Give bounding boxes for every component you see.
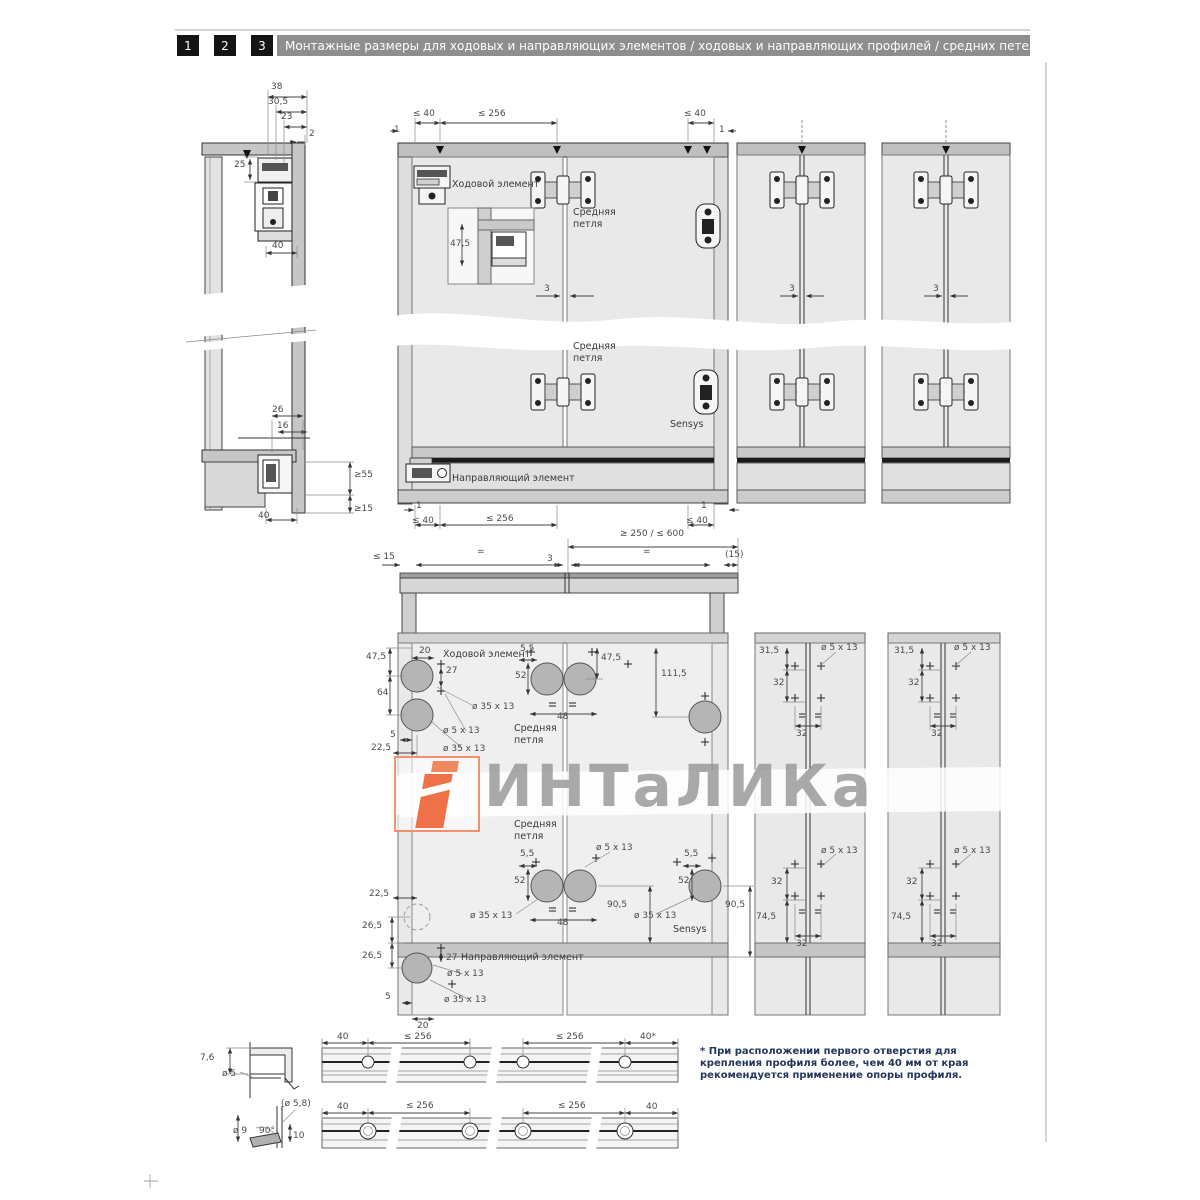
dim-47-5-center: 47,5 bbox=[601, 653, 621, 663]
dim-90-5-a: 90,5 bbox=[607, 900, 627, 910]
section-title: Монтажные размеры для ходовых и направля… bbox=[277, 35, 1030, 56]
dim-27-b: 27 bbox=[446, 953, 457, 963]
dim-ge55: ≥55 bbox=[354, 470, 373, 480]
dim-le40-top-left: ≤ 40 bbox=[413, 109, 435, 119]
step-2-badge: 2 bbox=[214, 35, 236, 56]
dim-equal-right: = bbox=[643, 547, 651, 557]
technical-drawing-canvas bbox=[0, 0, 1200, 1200]
dim-ge15: ≥15 bbox=[354, 504, 373, 514]
dim-26-5-b: 26,5 bbox=[362, 951, 382, 961]
dim-31-5-col2: 31,5 bbox=[894, 646, 914, 656]
dim-32-col1-d: 32 bbox=[796, 939, 807, 949]
step-1-badge: 1 bbox=[177, 35, 199, 56]
dim-5-b: 5 bbox=[385, 992, 391, 1002]
dim-111-5: 111,5 bbox=[661, 669, 687, 679]
dim-40-rail2-b: 40 bbox=[646, 1102, 657, 1112]
dim-7-6: 7,6 bbox=[200, 1053, 214, 1063]
dim-5-5-b: 5,5 bbox=[520, 849, 534, 859]
dim-40-star: 40* bbox=[640, 1032, 656, 1042]
dim-40-rail1: 40 bbox=[337, 1032, 348, 1042]
dim-dia5-8: (ø 5,8) bbox=[281, 1099, 311, 1109]
callout-hole5-a: ø 5 x 13 bbox=[443, 726, 480, 736]
dim-32-col1-b: 32 bbox=[796, 729, 807, 739]
dim-74-5-col2: 74,5 bbox=[891, 912, 911, 922]
dim-38: 38 bbox=[271, 82, 282, 92]
dim-26: 26 bbox=[272, 405, 283, 415]
callout-hole5-b: ø 5 x 13 bbox=[596, 843, 633, 853]
dim-1-bottom-right: 1 bbox=[701, 501, 707, 511]
callout-hole5-col1-top: ø 5 x 13 bbox=[821, 643, 858, 653]
dim-le256-rail2-a: ≤ 256 bbox=[406, 1101, 434, 1111]
dim-dia9: ø 9 bbox=[233, 1126, 247, 1136]
dim-3-front: 3 bbox=[544, 284, 550, 294]
dim-le40-bottom-right: ≤ 40 bbox=[686, 516, 708, 526]
label-guide-drill: Направляющий элемент bbox=[461, 952, 584, 963]
dim-52-c: 52 bbox=[678, 876, 689, 886]
dim-47-5-left: 47,5 bbox=[366, 652, 386, 662]
dim-5-a: 5 bbox=[390, 730, 396, 740]
label-guide-element: Направляющий элемент bbox=[452, 473, 575, 484]
dim-3-top-view: 3 bbox=[547, 554, 553, 564]
dim-47-5-inset: 47,5 bbox=[450, 239, 470, 249]
dim-52-a: 52 bbox=[515, 671, 526, 681]
dim-3-panel-a: 3 bbox=[789, 284, 795, 294]
hole-columns-drawing bbox=[755, 633, 1000, 1015]
label-sensys-drill: Sensys bbox=[673, 924, 706, 935]
callout-hole5-col2-bottom: ø 5 x 13 bbox=[954, 846, 991, 856]
label-middle-hinge-drill-a: Средняя петля bbox=[514, 723, 572, 748]
callout-hole35-b: ø 35 x 13 bbox=[443, 744, 485, 754]
dim-le256-top: ≤ 256 bbox=[478, 109, 506, 119]
dim-2: 2 bbox=[309, 129, 315, 139]
dim-5-5-a: 5,5 bbox=[520, 644, 534, 654]
dim-27-a: 27 bbox=[446, 666, 457, 676]
dim-32-col2-a: 32 bbox=[908, 678, 919, 688]
label-runner-drill: Ходовой элемент bbox=[443, 649, 530, 660]
dim-5-5-c: 5,5 bbox=[684, 849, 698, 859]
callout-hole35-c: ø 35 x 13 bbox=[470, 911, 512, 921]
dim-22-5-b: 22,5 bbox=[369, 889, 389, 899]
callout-hole35-d: ø 35 x 13 bbox=[634, 911, 676, 921]
dim-le40-bottom-left: ≤ 40 bbox=[412, 516, 434, 526]
dim-90-5-b: 90,5 bbox=[725, 900, 745, 910]
callout-hole5-col1-bottom: ø 5 x 13 bbox=[821, 846, 858, 856]
dim-25: 25 bbox=[234, 160, 245, 170]
dim-le256-rail1-b: ≤ 256 bbox=[556, 1032, 584, 1042]
callout-hole35-a: ø 35 x 13 bbox=[472, 702, 514, 712]
side-section-drawing bbox=[186, 90, 354, 524]
dim-15-paren: (15) bbox=[725, 550, 743, 560]
dim-48-a: 48 bbox=[557, 712, 568, 722]
dim-30-5: 30,5 bbox=[268, 97, 288, 107]
assembly-instruction-page: 1 2 3 Монтажные размеры для ходовых и на… bbox=[0, 0, 1200, 1200]
profile-support-footnote: * При расположении первого отверстия для… bbox=[700, 1046, 1015, 1083]
dim-range-250-600: ≥ 250 / ≤ 600 bbox=[620, 529, 684, 539]
dim-1-bottom-left: 1 bbox=[416, 501, 422, 511]
dim-32-col1-a: 32 bbox=[773, 678, 784, 688]
dim-3-panel-b: 3 bbox=[933, 284, 939, 294]
dim-74-5-col1: 74,5 bbox=[756, 912, 776, 922]
label-middle-hinge-lower: Средняя петля bbox=[573, 341, 631, 366]
dim-le40-top-right: ≤ 40 bbox=[684, 109, 706, 119]
label-middle-hinge-top: Средняя петля bbox=[573, 207, 631, 232]
dim-48-b: 48 bbox=[557, 918, 568, 928]
label-sensys: Sensys bbox=[670, 419, 703, 430]
label-middle-hinge-drill-b: Средняя петля bbox=[514, 819, 572, 844]
dim-40-rail2-a: 40 bbox=[337, 1102, 348, 1112]
dim-22-5-a: 22,5 bbox=[371, 743, 391, 753]
dim-32-col2-b: 32 bbox=[931, 729, 942, 739]
dim-10: 10 bbox=[293, 1131, 304, 1141]
dim-le15: ≤ 15 bbox=[373, 552, 395, 562]
dim-64: 64 bbox=[377, 688, 388, 698]
watermark-text: ИНТаЛИКа bbox=[484, 752, 875, 820]
dim-32-col1-c: 32 bbox=[771, 877, 782, 887]
callout-hole5-col2-top: ø 5 x 13 bbox=[954, 643, 991, 653]
dim-dia5: ø 5 bbox=[222, 1069, 236, 1079]
dim-equal-left: = bbox=[477, 547, 485, 557]
dim-32-col2-c: 32 bbox=[906, 877, 917, 887]
dim-1-top-left: 1 bbox=[394, 125, 400, 135]
dim-le256-bottom: ≤ 256 bbox=[486, 514, 514, 524]
dim-1-top-right: 1 bbox=[719, 125, 725, 135]
dim-le256-rail1-a: ≤ 256 bbox=[404, 1032, 432, 1042]
dim-26-5-a: 26,5 bbox=[362, 921, 382, 931]
dim-20-top: 20 bbox=[419, 646, 430, 656]
dim-90deg: 90° bbox=[259, 1126, 275, 1136]
intalika-logo-icon bbox=[394, 756, 480, 832]
dim-20-bottom: 20 bbox=[417, 1021, 428, 1031]
dim-52-b: 52 bbox=[514, 876, 525, 886]
step-3-badge: 3 bbox=[251, 35, 273, 56]
dim-31-5-col1: 31,5 bbox=[759, 646, 779, 656]
dim-le256-rail2-b: ≤ 256 bbox=[558, 1101, 586, 1111]
dim-16: 16 bbox=[277, 421, 288, 431]
dim-40-bottom: 40 bbox=[258, 511, 269, 521]
dim-32-col2-d: 32 bbox=[931, 939, 942, 949]
callout-hole5-c: ø 5 x 13 bbox=[447, 969, 484, 979]
dim-40-top: 40 bbox=[272, 241, 283, 251]
callout-hole35-e: ø 35 x 13 bbox=[444, 995, 486, 1005]
label-runner-element: Ходовой элемент bbox=[452, 179, 539, 190]
dim-23: 23 bbox=[281, 112, 292, 122]
